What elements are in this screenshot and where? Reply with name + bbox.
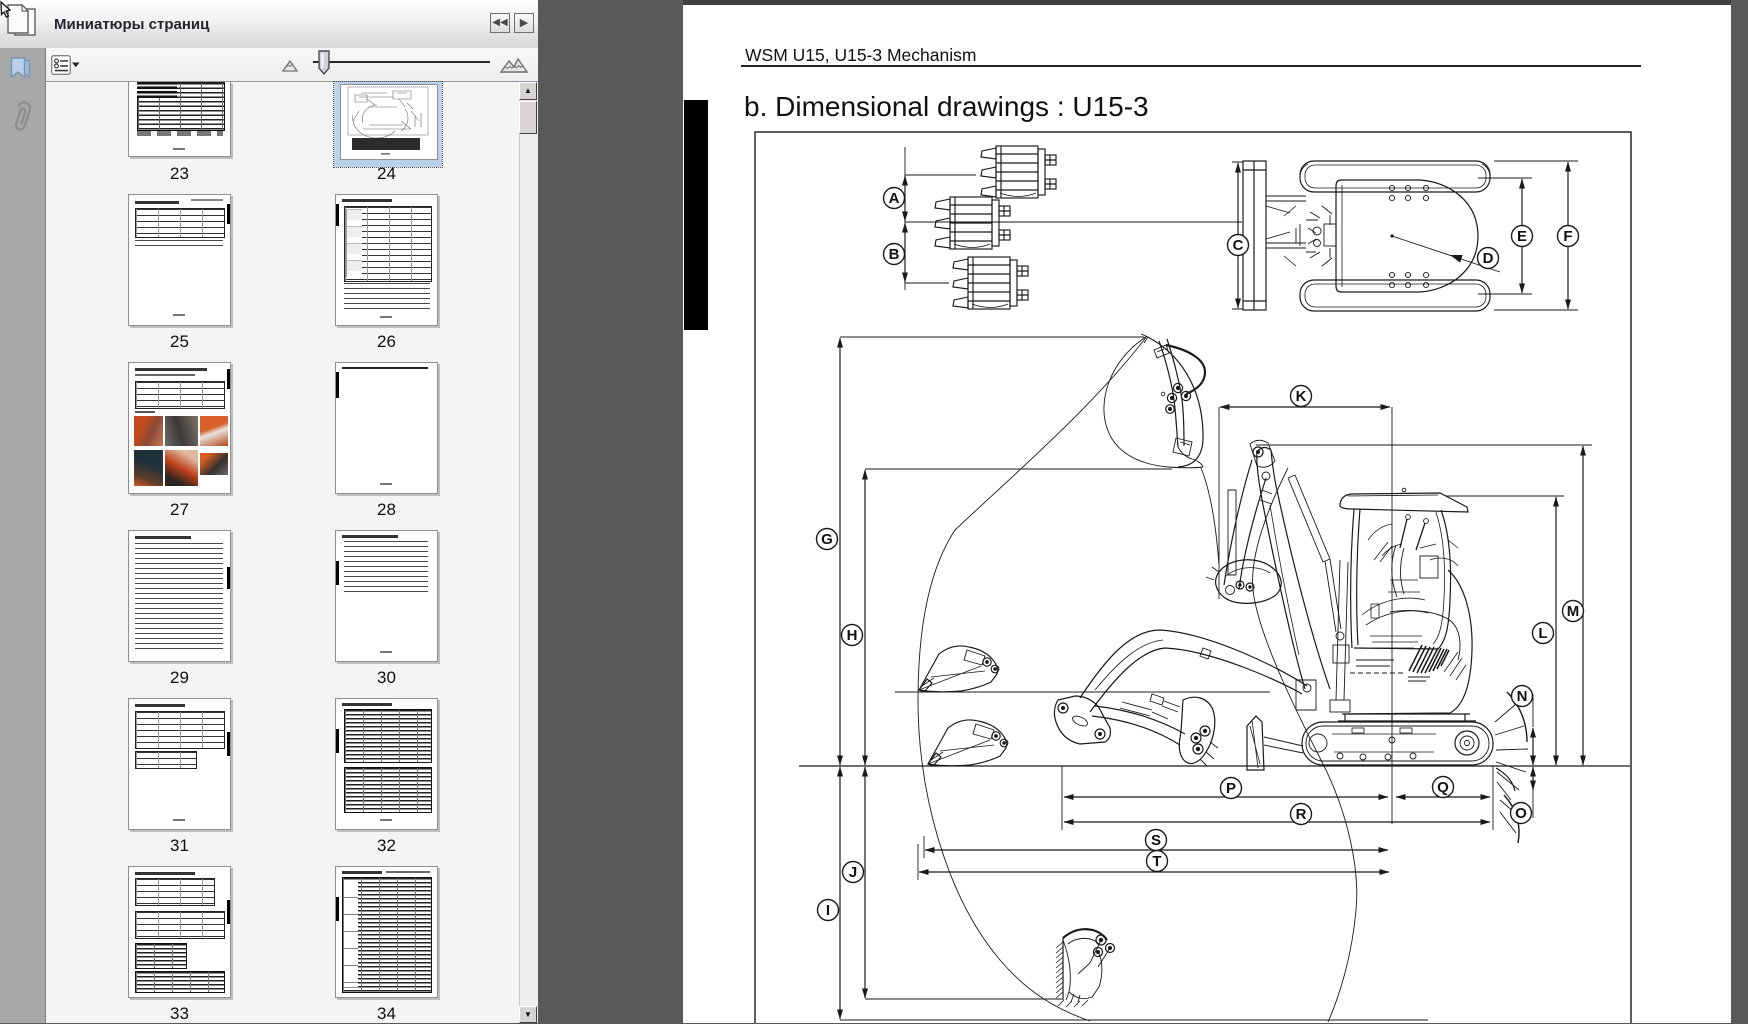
svg-text:T: T bbox=[1152, 853, 1161, 870]
svg-text:B: B bbox=[889, 246, 900, 263]
svg-text:E: E bbox=[1517, 228, 1527, 245]
svg-text:N: N bbox=[1517, 688, 1528, 705]
svg-text:M: M bbox=[1567, 603, 1580, 620]
svg-text:J: J bbox=[849, 864, 857, 881]
svg-text:K: K bbox=[1296, 388, 1307, 405]
svg-text:A: A bbox=[889, 190, 900, 207]
svg-text:H: H bbox=[847, 627, 858, 644]
svg-text:G: G bbox=[821, 531, 833, 548]
svg-text:P: P bbox=[1226, 780, 1236, 797]
svg-text:F: F bbox=[1563, 228, 1572, 245]
svg-text:R: R bbox=[1296, 806, 1307, 823]
svg-text:I: I bbox=[826, 902, 830, 919]
svg-text:D: D bbox=[1483, 250, 1494, 267]
svg-text:S: S bbox=[1151, 832, 1161, 849]
svg-text:C: C bbox=[1233, 237, 1244, 254]
svg-text:Q: Q bbox=[1437, 779, 1449, 796]
svg-text:O: O bbox=[1515, 805, 1527, 822]
svg-text:L: L bbox=[1538, 625, 1547, 642]
